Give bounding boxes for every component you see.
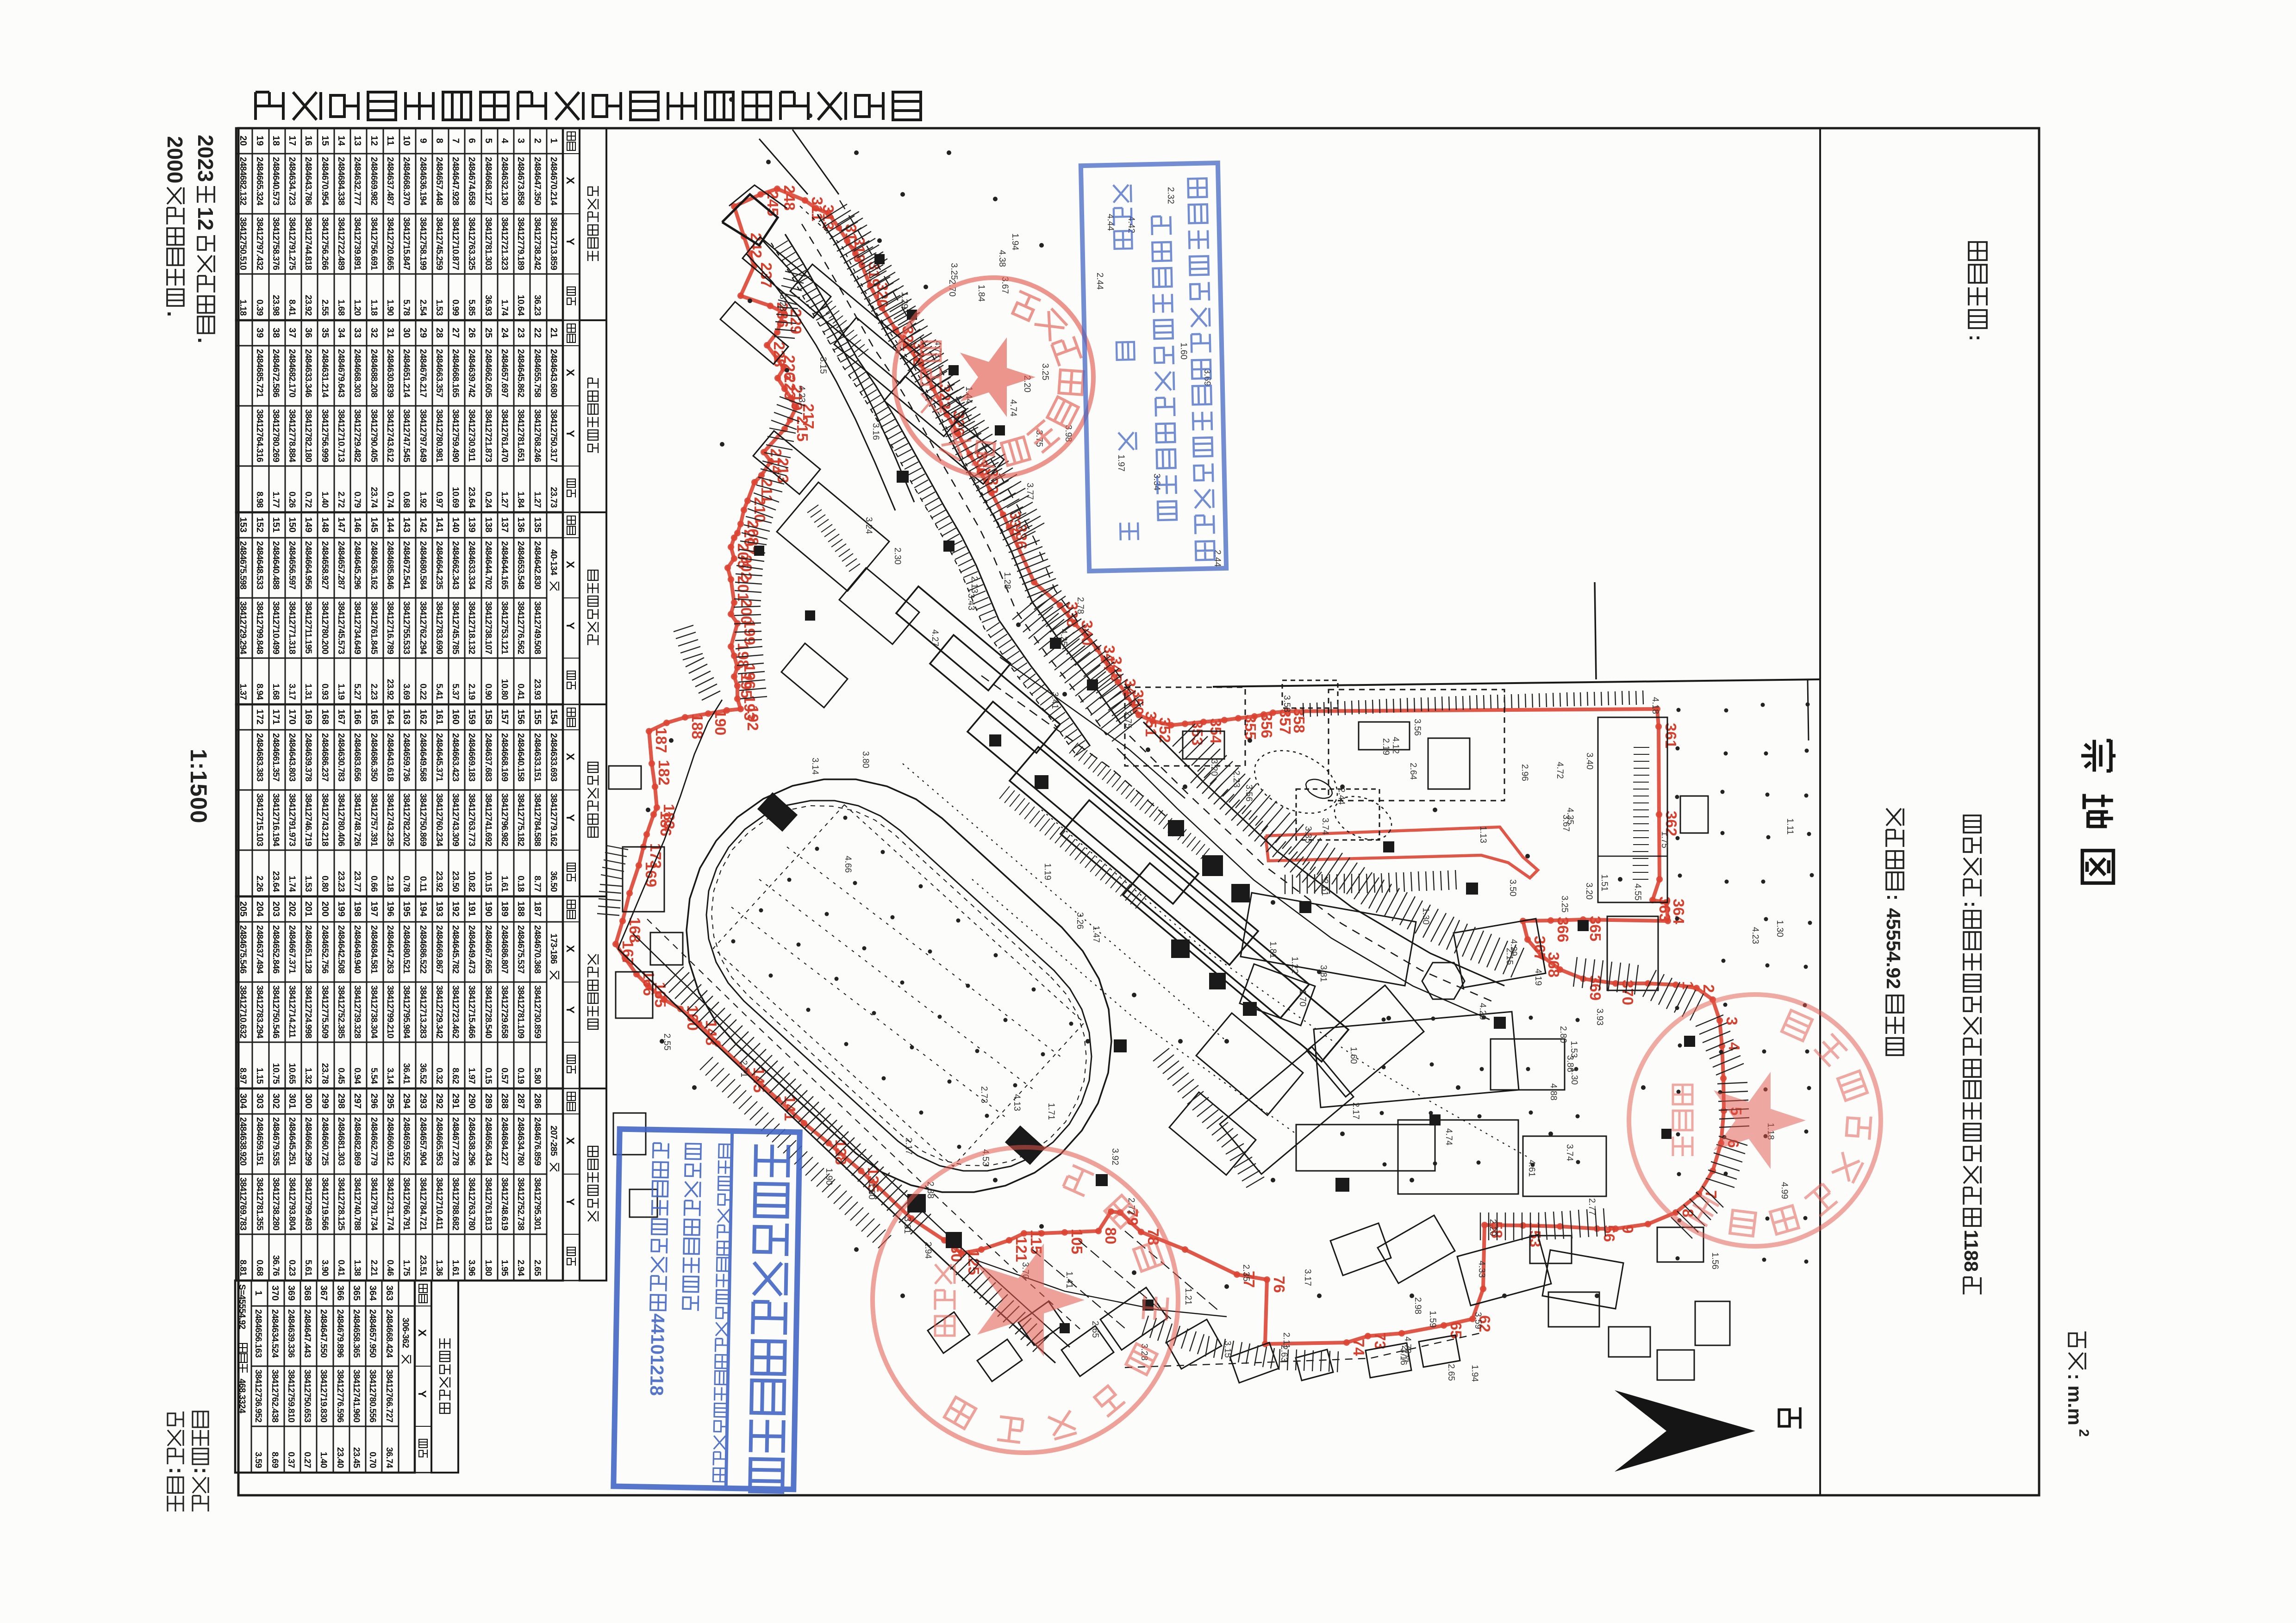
svg-text:23.92: 23.92 — [385, 679, 395, 700]
svg-text:X: X — [416, 1329, 428, 1337]
svg-text:38412782.180: 38412782.180 — [303, 409, 313, 462]
svg-text:0.23: 0.23 — [287, 1260, 297, 1276]
svg-text:2484669.982: 2484669.982 — [369, 157, 379, 205]
svg-text:2484665.324: 2484665.324 — [255, 157, 264, 205]
svg-text:38412719.566: 38412719.566 — [320, 1177, 330, 1230]
svg-text:8.94: 8.94 — [255, 684, 264, 700]
svg-text:38412731.774: 38412731.774 — [385, 1177, 395, 1231]
svg-text:2.17: 2.17 — [1351, 1102, 1360, 1119]
svg-text:3.41: 3.41 — [1050, 692, 1060, 709]
svg-text:2484637.487: 2484637.487 — [385, 157, 395, 205]
svg-text:361: 361 — [1662, 723, 1679, 748]
svg-text:3.69: 3.69 — [401, 684, 411, 700]
svg-text:38412761.813: 38412761.813 — [483, 1177, 493, 1230]
svg-text:30: 30 — [401, 328, 412, 338]
svg-text:1188: 1188 — [1960, 1230, 1982, 1272]
svg-text:38412746.719: 38412746.719 — [303, 793, 313, 846]
svg-text:2484657.950: 2484657.950 — [368, 1309, 377, 1357]
svg-text:200: 200 — [320, 901, 330, 916]
svg-text:3.25: 3.25 — [949, 263, 959, 280]
svg-text:38412745.573: 38412745.573 — [336, 601, 346, 654]
svg-text:187: 187 — [653, 728, 670, 753]
svg-text:4.33: 4.33 — [1477, 1261, 1486, 1278]
svg-text:1.27: 1.27 — [499, 491, 509, 508]
svg-text:1.75: 1.75 — [1660, 831, 1669, 848]
svg-text:293: 293 — [418, 1093, 428, 1108]
svg-text:1.27: 1.27 — [532, 491, 542, 508]
svg-text:1.41: 1.41 — [1064, 1271, 1074, 1288]
svg-text:38412775.509: 38412775.509 — [320, 985, 330, 1038]
svg-text:2.21: 2.21 — [369, 1260, 379, 1276]
svg-text:1.70: 1.70 — [1298, 989, 1307, 1007]
svg-text:2.23: 2.23 — [1231, 771, 1241, 788]
svg-text:3.26: 3.26 — [1075, 912, 1085, 929]
svg-text:366: 366 — [335, 1285, 345, 1300]
svg-text:0.79: 0.79 — [352, 491, 362, 508]
svg-text:38412723.462: 38412723.462 — [450, 985, 460, 1038]
svg-text:8.77: 8.77 — [532, 876, 542, 892]
svg-text:0.18: 0.18 — [516, 876, 525, 892]
svg-text:159: 159 — [467, 709, 477, 724]
svg-text:2.72: 2.72 — [336, 491, 346, 508]
svg-text:197: 197 — [369, 901, 379, 916]
svg-text:23.74: 23.74 — [369, 487, 379, 508]
svg-text:56: 56 — [1601, 1225, 1618, 1242]
svg-text:2484672.541: 2484672.541 — [401, 541, 411, 590]
svg-text:3.14: 3.14 — [810, 758, 820, 775]
svg-text:352: 352 — [1156, 717, 1173, 743]
svg-text:190: 190 — [483, 901, 493, 916]
svg-text:2.65: 2.65 — [532, 1260, 542, 1276]
svg-text:X: X — [564, 369, 576, 376]
svg-text:3: 3 — [516, 138, 526, 143]
svg-text:38412722.489: 38412722.489 — [336, 217, 346, 270]
svg-text:12: 12 — [193, 207, 218, 230]
svg-text:2484668.370: 2484668.370 — [401, 157, 411, 205]
svg-text:3.14: 3.14 — [385, 1068, 395, 1084]
svg-text:2484660.725: 2484660.725 — [320, 1117, 330, 1166]
svg-text:290: 290 — [467, 1093, 477, 1108]
svg-text:2484675.537: 2484675.537 — [516, 925, 525, 973]
svg-text:38412769.783: 38412769.783 — [238, 1177, 248, 1230]
svg-text:2484664.235: 2484664.235 — [434, 541, 444, 590]
svg-text:13: 13 — [352, 136, 362, 146]
svg-text::: : — [1960, 901, 1982, 908]
svg-text:153: 153 — [238, 517, 248, 532]
svg-text:38412711.195: 38412711.195 — [303, 601, 313, 654]
svg-text:3.15: 3.15 — [1223, 1341, 1232, 1358]
svg-text:156: 156 — [516, 709, 526, 724]
svg-text:1.94: 1.94 — [1470, 1365, 1479, 1382]
svg-text:38412720.665: 38412720.665 — [385, 217, 395, 270]
svg-text:4.23: 4.23 — [1750, 927, 1760, 944]
svg-text:38412721.323: 38412721.323 — [499, 217, 509, 270]
svg-text:173-186: 173-186 — [549, 933, 558, 964]
svg-text:1.94: 1.94 — [1010, 233, 1020, 250]
svg-text:4.74: 4.74 — [1444, 1128, 1454, 1145]
svg-text:38412781.303: 38412781.303 — [483, 217, 493, 270]
svg-text:23: 23 — [516, 328, 526, 338]
svg-text:2484686.350: 2484686.350 — [369, 733, 379, 781]
svg-text:Y: Y — [564, 238, 576, 245]
svg-text:199: 199 — [336, 901, 346, 916]
svg-text:1.20: 1.20 — [352, 299, 362, 316]
svg-text:38412764.316: 38412764.316 — [255, 409, 264, 462]
svg-text:2484644.165: 2484644.165 — [499, 541, 509, 590]
svg-text:5.61: 5.61 — [303, 1260, 313, 1276]
svg-text:5.78: 5.78 — [401, 299, 411, 316]
svg-text:2484682.132: 2484682.132 — [238, 157, 248, 205]
svg-text:2.17: 2.17 — [904, 1138, 913, 1155]
svg-text:4.18: 4.18 — [1650, 697, 1660, 714]
svg-text:2484686.522: 2484686.522 — [418, 925, 428, 973]
svg-text:4: 4 — [499, 138, 510, 143]
svg-text:5.41: 5.41 — [434, 684, 444, 700]
svg-text:0.27: 0.27 — [302, 1452, 312, 1468]
svg-text:38412738.242: 38412738.242 — [532, 217, 542, 270]
svg-text:207-285: 207-285 — [549, 1126, 558, 1157]
svg-text:3.50: 3.50 — [1508, 879, 1517, 896]
svg-text:Y: Y — [564, 1198, 576, 1206]
svg-text:3.56: 3.56 — [1412, 719, 1422, 736]
svg-text:4: 4 — [1726, 1042, 1743, 1051]
svg-text:80: 80 — [1102, 1227, 1119, 1244]
svg-text:196: 196 — [385, 901, 395, 916]
svg-text:1.47: 1.47 — [1091, 926, 1101, 943]
svg-text:2484632.777: 2484632.777 — [352, 157, 362, 205]
svg-text:1.90: 1.90 — [385, 299, 395, 316]
svg-text:1.60: 1.60 — [1179, 342, 1188, 360]
svg-text:2.75: 2.75 — [1123, 711, 1133, 728]
svg-text:2000: 2000 — [163, 136, 187, 183]
svg-text:138: 138 — [832, 1139, 849, 1165]
svg-text:1.81: 1.81 — [1268, 941, 1278, 958]
svg-text:167: 167 — [336, 709, 346, 724]
svg-text:3.90: 3.90 — [320, 1260, 330, 1276]
svg-text:2484683.383: 2484683.383 — [255, 733, 264, 781]
svg-text:2484636.194: 2484636.194 — [418, 157, 428, 205]
svg-text:4.99: 4.99 — [1779, 1182, 1789, 1199]
svg-text:1.80: 1.80 — [867, 1182, 876, 1200]
svg-text:38412791.734: 38412791.734 — [369, 1177, 379, 1231]
svg-text:2484644.702: 2484644.702 — [483, 541, 493, 589]
svg-text:163: 163 — [401, 709, 412, 724]
svg-text:2484673.858: 2484673.858 — [516, 157, 525, 205]
svg-text:2484630.839: 2484630.839 — [385, 349, 395, 397]
svg-text:6: 6 — [467, 138, 477, 143]
svg-text:38412710.877: 38412710.877 — [450, 217, 460, 270]
svg-text:2484688.208: 2484688.208 — [369, 349, 379, 397]
svg-text:2484639.742: 2484639.742 — [467, 349, 476, 397]
svg-text:15: 15 — [320, 136, 330, 146]
svg-text:2484668.165: 2484668.165 — [450, 349, 460, 398]
svg-text:0.19: 0.19 — [516, 1068, 525, 1084]
svg-text:1.53: 1.53 — [434, 299, 444, 316]
svg-text:10.82: 10.82 — [467, 871, 476, 892]
svg-text:38412795.984: 38412795.984 — [401, 985, 411, 1038]
svg-text:38412710.632: 38412710.632 — [238, 985, 248, 1038]
svg-text:0.22: 0.22 — [418, 684, 428, 700]
svg-text:1.71: 1.71 — [1046, 1103, 1056, 1120]
svg-text:2: 2 — [532, 138, 543, 143]
svg-text:2484637.683: 2484637.683 — [483, 733, 493, 781]
svg-text:2.64: 2.64 — [1408, 763, 1418, 780]
svg-text:2484636.162: 2484636.162 — [369, 541, 379, 589]
svg-text:35: 35 — [320, 328, 330, 338]
svg-text:188: 188 — [516, 901, 526, 916]
svg-text:2.65: 2.65 — [1090, 1321, 1100, 1338]
svg-text:2484647.443: 2484647.443 — [302, 1309, 312, 1357]
svg-text:23.93: 23.93 — [532, 679, 542, 700]
svg-text:3.93: 3.93 — [1595, 1008, 1604, 1026]
svg-text:1.18: 1.18 — [238, 299, 248, 316]
svg-text:38412738.304: 38412738.304 — [369, 985, 379, 1038]
svg-text:38412782.202: 38412782.202 — [401, 793, 411, 846]
svg-text:23.77: 23.77 — [352, 871, 362, 892]
svg-text:152: 152 — [255, 517, 265, 532]
svg-text:38412780.406: 38412780.406 — [336, 793, 346, 846]
svg-text:301: 301 — [287, 1093, 297, 1108]
svg-text:S=45554.92: S=45554.92 — [237, 1284, 247, 1329]
svg-text:188: 188 — [689, 714, 706, 739]
svg-text:1.19: 1.19 — [336, 684, 346, 700]
svg-text:162: 162 — [418, 709, 428, 724]
svg-text:298: 298 — [336, 1093, 346, 1108]
svg-text:182: 182 — [655, 760, 673, 785]
svg-text:8.41: 8.41 — [287, 299, 297, 316]
svg-text:468.3324: 468.3324 — [237, 1379, 247, 1413]
svg-text:36.50: 36.50 — [549, 871, 558, 892]
svg-text:36.93: 36.93 — [483, 295, 493, 316]
svg-text:38412797.649: 38412797.649 — [418, 409, 428, 462]
svg-text:38412796.982: 38412796.982 — [499, 793, 509, 846]
svg-text:38412718.132: 38412718.132 — [467, 601, 476, 654]
svg-text:38412779.162: 38412779.162 — [549, 793, 558, 846]
svg-text:200: 200 — [738, 599, 755, 624]
svg-text:303: 303 — [255, 1093, 265, 1108]
svg-text:370: 370 — [270, 1285, 280, 1300]
svg-text:137: 137 — [499, 517, 510, 532]
svg-text:33: 33 — [352, 328, 362, 338]
svg-text:38412758.199: 38412758.199 — [418, 217, 428, 270]
svg-text:X: X — [564, 753, 576, 760]
svg-text:38412715.466: 38412715.466 — [467, 985, 476, 1038]
svg-text:0.45: 0.45 — [336, 1068, 346, 1084]
svg-text:2484645.371: 2484645.371 — [434, 733, 444, 782]
svg-text:2.15: 2.15 — [1504, 948, 1514, 965]
svg-text:17: 17 — [287, 136, 297, 146]
svg-text:38412790.405: 38412790.405 — [369, 409, 379, 462]
svg-text:38412741.960: 38412741.960 — [351, 1369, 361, 1422]
svg-text:3.43: 3.43 — [966, 593, 976, 610]
svg-text:10.80: 10.80 — [499, 679, 509, 700]
svg-text:1.19: 1.19 — [1042, 863, 1052, 880]
svg-text:44101218: 44101218 — [646, 1313, 668, 1396]
svg-text:2.61: 2.61 — [1320, 879, 1329, 896]
svg-text:8.69: 8.69 — [270, 1452, 280, 1468]
svg-text:X: X — [564, 177, 576, 184]
svg-text:38412750.869: 38412750.869 — [418, 793, 428, 846]
svg-text:3.16: 3.16 — [1398, 1348, 1408, 1365]
svg-text:2484667.371: 2484667.371 — [287, 925, 297, 974]
svg-text:295: 295 — [385, 1093, 395, 1108]
svg-text:2484649.568: 2484649.568 — [418, 733, 428, 781]
svg-text:0.74: 0.74 — [385, 491, 395, 508]
svg-text:2484662.605: 2484662.605 — [483, 349, 493, 398]
svg-text:1.74: 1.74 — [287, 876, 297, 892]
svg-text:2484670.368: 2484670.368 — [532, 925, 542, 973]
svg-text:2484637.494: 2484637.494 — [255, 925, 264, 974]
svg-text:11: 11 — [385, 136, 395, 145]
svg-text:8.62: 8.62 — [450, 1068, 460, 1084]
svg-text:4.29: 4.29 — [1478, 1003, 1487, 1020]
svg-text:2484643.680: 2484643.680 — [549, 349, 558, 397]
svg-text:23.51: 23.51 — [418, 1255, 428, 1276]
svg-text:74: 74 — [1350, 1339, 1367, 1356]
svg-text:: m.m: : m.m — [2064, 1374, 2086, 1425]
svg-text:121: 121 — [1013, 1237, 1030, 1262]
svg-text:2484672.586: 2484672.586 — [271, 349, 281, 397]
svg-text:2484642.508: 2484642.508 — [336, 925, 346, 973]
svg-text:38412783.690: 38412783.690 — [434, 601, 444, 654]
svg-text:141: 141 — [434, 517, 444, 532]
svg-text:2484638.920: 2484638.920 — [238, 1117, 248, 1165]
svg-text:38412743.218: 38412743.218 — [320, 793, 330, 846]
svg-text:20: 20 — [238, 136, 248, 146]
svg-text:2484647.928: 2484647.928 — [450, 157, 460, 205]
svg-text:2484663.423: 2484663.423 — [450, 733, 460, 781]
svg-text:38412756.999: 38412756.999 — [320, 409, 330, 462]
svg-text:2484676.859: 2484676.859 — [532, 1117, 542, 1165]
svg-text:289: 289 — [483, 1093, 493, 1108]
svg-text:300: 300 — [303, 1093, 313, 1108]
svg-text:369: 369 — [1587, 975, 1604, 1001]
svg-text:8.97: 8.97 — [238, 1068, 248, 1084]
svg-text:2484640.573: 2484640.573 — [271, 157, 281, 205]
svg-text:2.18: 2.18 — [385, 876, 395, 892]
svg-text:1.68: 1.68 — [271, 684, 281, 700]
svg-text:0.93: 0.93 — [320, 684, 330, 700]
svg-text:2484640.158: 2484640.158 — [516, 733, 525, 781]
svg-text:154: 154 — [549, 709, 559, 725]
svg-text:2484680.521: 2484680.521 — [401, 925, 411, 974]
svg-text:2.30: 2.30 — [892, 547, 902, 565]
svg-text:4.27: 4.27 — [930, 629, 940, 647]
svg-text:4.66: 4.66 — [843, 856, 853, 873]
svg-text:138: 138 — [483, 517, 493, 532]
svg-text:187: 187 — [532, 901, 543, 916]
svg-text:38412747.545: 38412747.545 — [401, 409, 411, 462]
svg-text:1.95: 1.95 — [499, 1260, 509, 1276]
svg-text:19: 19 — [255, 136, 265, 146]
svg-text:0.66: 0.66 — [369, 876, 379, 892]
svg-text:2484681.303: 2484681.303 — [336, 1117, 346, 1165]
svg-text:0.57: 0.57 — [499, 1068, 509, 1084]
svg-text:23.45: 23.45 — [351, 1447, 361, 1468]
svg-text:2.20: 2.20 — [1488, 1219, 1497, 1236]
svg-text:2.23: 2.23 — [369, 684, 379, 700]
svg-text::: : — [1883, 894, 1905, 901]
svg-text:3.96: 3.96 — [467, 1260, 476, 1276]
svg-text:3.35: 3.35 — [1303, 826, 1313, 843]
svg-text:1.61: 1.61 — [499, 876, 509, 892]
svg-text:38412750.510: 38412750.510 — [238, 217, 248, 270]
svg-text:X: X — [564, 945, 576, 952]
svg-text:28: 28 — [434, 328, 444, 338]
svg-text:3.15: 3.15 — [818, 357, 828, 374]
svg-text:1.31: 1.31 — [303, 684, 313, 700]
svg-text:2484632.130: 2484632.130 — [499, 157, 509, 205]
svg-text:38: 38 — [271, 328, 281, 338]
svg-text:2484662.779: 2484662.779 — [369, 1117, 379, 1165]
svg-text:2484651.128: 2484651.128 — [303, 925, 313, 973]
svg-text:2484656.163: 2484656.163 — [253, 1309, 263, 1357]
svg-text:38412799.493: 38412799.493 — [303, 1177, 313, 1230]
svg-text:25: 25 — [483, 328, 493, 338]
svg-text:0.37: 0.37 — [286, 1452, 296, 1468]
svg-text:Y: Y — [416, 1390, 428, 1398]
svg-text:1.61: 1.61 — [450, 1260, 460, 1276]
svg-text:292: 292 — [434, 1093, 444, 1108]
svg-text:2484679.535: 2484679.535 — [271, 1117, 281, 1166]
svg-text:1.32: 1.32 — [303, 1068, 313, 1084]
svg-text:2.98: 2.98 — [1413, 1297, 1423, 1314]
svg-text:1.11: 1.11 — [1785, 818, 1795, 835]
svg-text:1.75: 1.75 — [401, 1260, 411, 1276]
svg-text:2484638.296: 2484638.296 — [467, 1117, 476, 1165]
svg-text:139: 139 — [467, 517, 477, 532]
svg-text:38412710.411: 38412710.411 — [434, 1177, 444, 1230]
svg-text:306-362: 306-362 — [400, 1318, 410, 1348]
svg-text:3: 3 — [1723, 1017, 1741, 1025]
svg-text:38412745.785: 38412745.785 — [450, 601, 460, 654]
svg-text:2484647.550: 2484647.550 — [318, 1309, 328, 1357]
svg-text:23.50: 23.50 — [450, 871, 460, 892]
svg-text:2484686.807: 2484686.807 — [499, 925, 509, 973]
svg-text:3.80: 3.80 — [861, 751, 870, 768]
svg-text:38412791.973: 38412791.973 — [287, 793, 297, 846]
svg-text:38412728.125: 38412728.125 — [336, 1177, 346, 1231]
svg-text:161: 161 — [434, 709, 444, 724]
svg-text:38412744.818: 38412744.818 — [303, 217, 313, 270]
svg-text:2484664.956: 2484664.956 — [303, 541, 313, 589]
svg-text:1.22: 1.22 — [1290, 957, 1299, 974]
svg-text:10.75: 10.75 — [271, 1063, 281, 1084]
svg-text:2484682.869: 2484682.869 — [352, 1117, 362, 1165]
svg-text:0.15: 0.15 — [483, 1068, 493, 1084]
svg-text:8.98: 8.98 — [255, 491, 264, 508]
svg-text:291: 291 — [450, 1093, 461, 1108]
svg-text:38412781.355: 38412781.355 — [255, 1177, 264, 1231]
svg-text:2484659.151: 2484659.151 — [255, 1117, 264, 1166]
svg-text:2.55: 2.55 — [320, 299, 330, 316]
svg-text:169: 169 — [303, 709, 313, 724]
svg-text:3.74: 3.74 — [1320, 818, 1330, 835]
svg-text:366: 366 — [1554, 917, 1572, 942]
svg-text:38412741.692: 38412741.692 — [483, 793, 493, 846]
svg-text:2484633.346: 2484633.346 — [303, 349, 313, 397]
svg-text:10.69: 10.69 — [450, 487, 460, 508]
svg-text:38412756.266: 38412756.266 — [320, 217, 330, 270]
svg-text:38412768.246: 38412768.246 — [532, 409, 542, 462]
svg-text:9: 9 — [1619, 1225, 1636, 1233]
svg-text:23.98: 23.98 — [271, 295, 281, 316]
svg-text:38412729.294: 38412729.294 — [238, 601, 248, 654]
svg-text:1.30: 1.30 — [1569, 1068, 1579, 1085]
svg-text:38412715.103: 38412715.103 — [255, 793, 264, 846]
svg-text:36.23: 36.23 — [532, 295, 542, 316]
svg-text:193: 193 — [434, 901, 444, 916]
